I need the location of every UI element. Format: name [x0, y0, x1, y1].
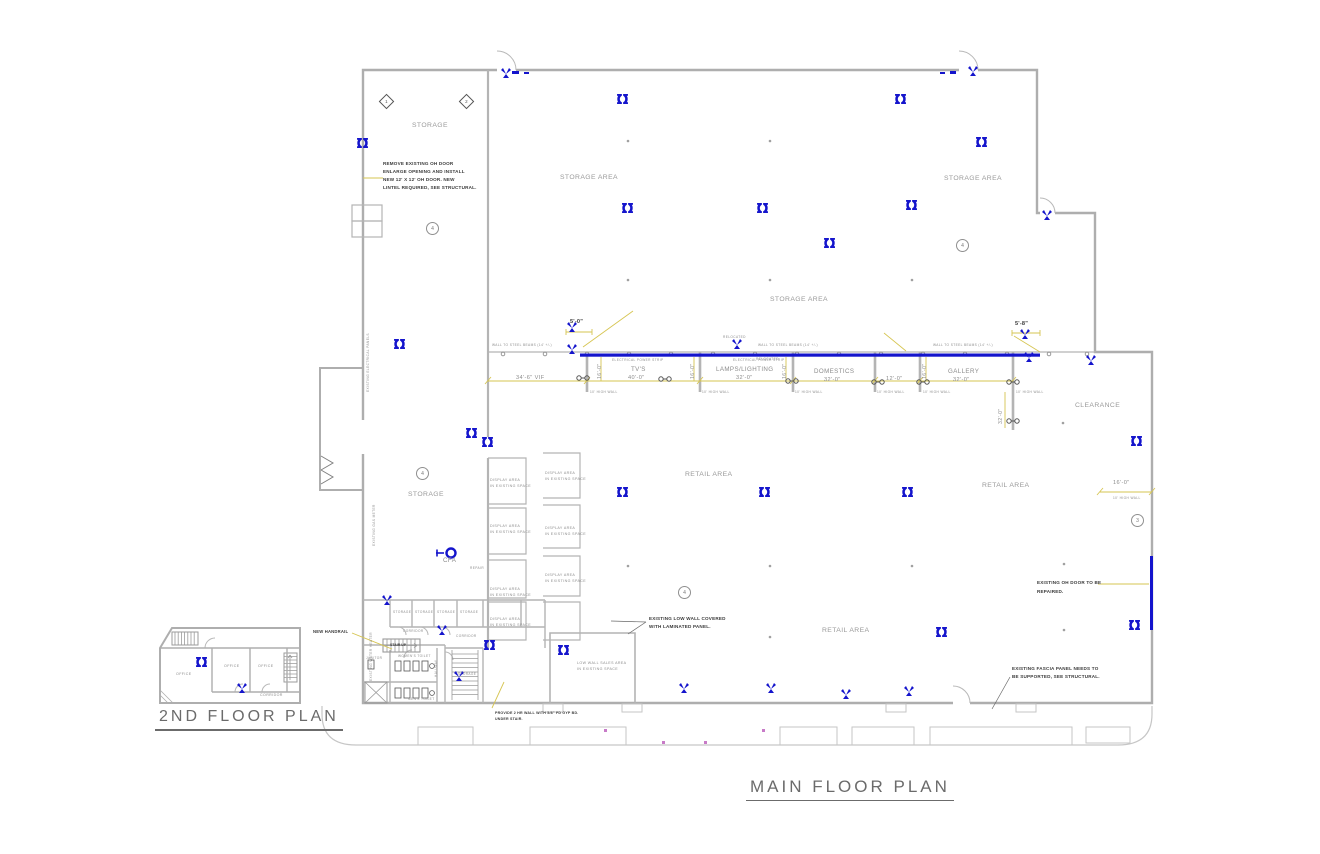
keynote-4-a: 4: [426, 222, 439, 235]
beams-note-3: WALL TO STEEL BEAMS (14' +/-): [933, 343, 993, 347]
wall10-note-4: 10' HIGH WALL: [877, 390, 905, 394]
main-floor-plan-title: MAIN FLOOR PLAN: [746, 777, 954, 801]
entry-double-door: [321, 456, 333, 484]
note-leaders: [611, 621, 1010, 709]
note-remove-oh-door: REMOVE EXISTING OH DOOR ENLARGE OPENING …: [383, 160, 477, 192]
existing-electrical-panels-label: EXISTING ELECTRICAL PANELS: [366, 333, 370, 392]
storage-room-label-4: STORAGE: [460, 610, 478, 614]
note-fascia: EXISTING FASCIA PANEL NEEDS TO BE SUPPOR…: [1012, 665, 1100, 681]
site-markers: [604, 729, 765, 744]
note-two-hr-wall: PROVIDE 2 HR WALL WITH 5/8" FD GYP BD. U…: [495, 710, 578, 723]
dim-16-0-b: 16'-0": [690, 363, 697, 379]
note-new-handrail: NEW HANDRAIL: [313, 629, 348, 634]
dept-gallery-label: GALLERY: [948, 368, 979, 376]
dim-16-0-c: 16'-0": [782, 363, 789, 379]
note-low-wall: EXISTING LOW WALL COVERED WITH LAMINATED…: [649, 615, 726, 631]
dept-gallery-dim: 32'-0": [953, 377, 970, 384]
dept-domestics-label: DOMESTICS: [814, 368, 854, 376]
hallway-label: HALLWAY: [434, 660, 438, 677]
storage-room-label-1: STORAGE: [393, 610, 411, 614]
display-area-label-7: DISPLAY AREAIN EXISTING SPACE: [545, 573, 586, 585]
dim-16-0-d: 16'-0": [922, 363, 929, 379]
dept-lamps-label: LAMPS/LIGHTING: [716, 366, 774, 374]
dim-32-0-vert: 32'-0": [998, 408, 1005, 424]
plumbing-fixtures: [368, 660, 434, 698]
note-oh-repair: EXISTING OH DOOR TO BE REPAIRED.: [1037, 578, 1101, 596]
low-wall-sales-label: LOW WALL SALES AREAIN EXISTING SPACE: [577, 661, 626, 673]
retail-area-label-3: RETAIL AREA: [822, 627, 869, 636]
mens-toilet-label: MEN'S TOILET: [408, 697, 435, 701]
power-strip-note-1: ELECTRICAL POWER STRIP: [612, 358, 664, 362]
dept-lamps-dim: 32'-0": [736, 375, 753, 382]
display-area-label-5: DISPLAY AREAIN EXISTING SPACE: [545, 471, 586, 483]
dim-5-0: 5'-0": [570, 319, 583, 326]
stair-up-label: STAIR UP: [390, 643, 406, 647]
dept-tvs-dim: 40'-0": [628, 375, 645, 382]
office-label-1: OFFICE: [176, 672, 192, 677]
repair-label: REPAIR: [470, 566, 484, 570]
dim-5-8: 5'-8": [1015, 321, 1028, 328]
storage-area-label-3: STORAGE AREA: [770, 296, 828, 305]
office-label-2: OFFICE: [224, 664, 240, 669]
display-area-label-6: DISPLAY AREAIN EXISTING SPACE: [545, 526, 586, 538]
storage-label-left: STORAGE: [408, 491, 444, 500]
storage-stair-room-label: STORAGE: [458, 672, 476, 676]
sidewalk: [322, 704, 1152, 745]
keynote-4-c: 4: [416, 467, 429, 480]
wall10-note-3: 10' HIGH WALL: [795, 390, 823, 394]
dimension-lines: [352, 178, 1155, 708]
relocated-note-1: RELOCATED: [723, 335, 746, 339]
storage-label-topleft: STORAGE: [412, 122, 448, 131]
grid-dots: [627, 140, 1066, 639]
storage-room-label-3: STORAGE: [437, 610, 455, 614]
display-area-label-1: DISPLAY AREAIN EXISTING SPACE: [490, 478, 531, 490]
womens-toilet-label: WOMEN'S TOILET: [398, 654, 431, 658]
dept-tvs-label: TV'S: [631, 366, 646, 374]
dim-34-6-vif: 34'-6" VIF: [516, 375, 545, 382]
existing-gas-meter-label: EXISTING GAS METER: [372, 504, 376, 546]
corridor-label-1: CORRIDOR: [403, 629, 424, 633]
dim-16-0-clearance: 16'-0": [1113, 480, 1130, 487]
keynote-3: 3: [1131, 514, 1144, 527]
keynote-4-b: 4: [956, 239, 969, 252]
wall10-note-5: 10' HIGH WALL: [923, 390, 951, 394]
dim-12-0: 12'-0": [886, 376, 903, 383]
floor-plan-sheet: STORAGE STORAGE AREA STORAGE AREA STORAG…: [0, 0, 1320, 854]
display-area-label-2: DISPLAY AREAIN EXISTING SPACE: [490, 524, 531, 536]
janitor-label: JANITOR: [366, 656, 382, 660]
power-strip-line: [512, 71, 1152, 630]
retail-area-label-2: RETAIL AREA: [982, 482, 1029, 491]
display-area-label-4: DISPLAY AREAIN EXISTING SPACE: [490, 617, 531, 629]
beams-note-2: WALL TO STEEL BEAMS (14' +/-): [758, 343, 818, 347]
wall10-note-6: 10' HIGH WALL: [1016, 390, 1044, 394]
wall10-note-1: 10' HIGH WALL: [590, 390, 618, 394]
clearance-label: CLEARANCE: [1075, 402, 1120, 411]
display-area-label-3: DISPLAY AREAIN EXISTING SPACE: [490, 587, 531, 599]
wall10-note-2: 10' HIGH WALL: [702, 390, 730, 394]
dept-domestics-dim: 32'-0": [824, 377, 841, 384]
storage-area-label-2: STORAGE AREA: [944, 175, 1002, 184]
storage-room-label-2: STORAGE: [415, 610, 433, 614]
second-floor-corridor-label: CORRIDOR: [260, 693, 283, 698]
dim-16-0-a: 16'-0": [597, 363, 604, 379]
corridor-label-2: CORRIDOR: [456, 634, 477, 638]
keynote-4-d: 4: [678, 586, 691, 599]
beams-note-1: WALL TO STEEL BEAMS (14' +/-): [492, 343, 552, 347]
wall10-note-7: 10' HIGH WALL: [1113, 496, 1141, 500]
office-label-3: OFFICE: [258, 664, 274, 669]
second-floor-plan-title: 2ND FLOOR PLAN: [155, 708, 343, 731]
retail-area-label-1: RETAIL AREA: [685, 471, 732, 480]
storage-area-label-1: STORAGE AREA: [560, 174, 618, 183]
relocated-note-2: RELOCATED: [756, 357, 779, 361]
cfa-label: CFA: [443, 557, 456, 565]
